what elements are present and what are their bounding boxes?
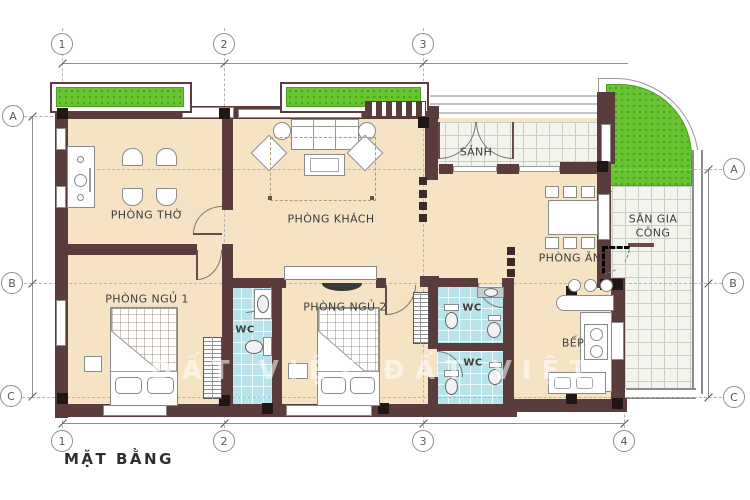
wall-segment (428, 285, 438, 349)
toilet-bowl (445, 312, 458, 329)
partition-post (419, 214, 427, 222)
grid-marker-top-1: 1 (51, 33, 73, 55)
bar-stool (584, 279, 597, 292)
room-label-worship: PHÒNG THỜ (111, 209, 183, 222)
bar-stool (600, 279, 613, 292)
room-label-bedroom1: PHÒNG NGỦ 1 (105, 293, 189, 306)
toilet-tank (263, 337, 272, 356)
grid-marker-bottom-2: 2 (213, 430, 235, 452)
door-leaf (196, 250, 198, 280)
window (56, 186, 66, 208)
tv-console (284, 266, 377, 280)
room-label-wc3: WC (463, 358, 482, 369)
column (219, 108, 230, 119)
door-leaf (512, 122, 514, 159)
toilet-bowl (245, 340, 263, 354)
wall-segment (437, 343, 505, 351)
bidet-bowl (487, 322, 501, 338)
column (612, 398, 623, 409)
grid-marker-bottom-3: 3 (412, 430, 434, 452)
partition-post (507, 258, 515, 266)
grid-marker-left-B: B (1, 272, 23, 294)
room-label-lobby: SẢNH (460, 146, 493, 159)
plan-title: MẶT BẰNG (64, 450, 174, 468)
floor-plan: ĐẤT VIỆT ĐẤT VIỆT PHÒNG THỜ PHÒNG KHÁCH … (0, 0, 750, 500)
grid-marker-bottom-1: 1 (51, 430, 73, 452)
coffee-table-inner (310, 158, 339, 172)
grid-marker-right-C: C (723, 386, 745, 408)
dining-chair (563, 237, 577, 249)
window (56, 128, 66, 150)
chair (122, 148, 143, 166)
dimension-line-bottom (62, 423, 624, 424)
partition-post (507, 269, 515, 277)
bar-counter (556, 295, 614, 311)
dining-chair (545, 186, 559, 198)
partition-post (419, 202, 427, 210)
wall-segment (560, 162, 598, 174)
wall-segment (503, 399, 625, 412)
dimension-line-top (62, 63, 628, 64)
toilet-tank (444, 304, 459, 311)
window (286, 405, 372, 416)
room-label-bedroom2: PHÒNG NGỦ 2 (303, 301, 387, 314)
window (611, 322, 624, 360)
grid-marker-top-2: 2 (213, 33, 235, 55)
column (566, 393, 577, 404)
slatted-screen (365, 101, 426, 117)
dining-chair (581, 237, 595, 249)
wardrobe-line (420, 292, 421, 344)
room-label-dining: PHÒNG ĂN (539, 252, 602, 265)
window (103, 405, 167, 416)
carpet-corner-dot (268, 196, 272, 200)
burner (590, 328, 603, 341)
column-gap (601, 124, 611, 162)
bar-stool (568, 279, 581, 292)
chair (156, 148, 177, 166)
watermark: ĐẤT VIỆT ĐẤT VIỆT (150, 356, 597, 386)
sofa-back-line (292, 126, 358, 127)
grid-marker-bottom-4: 4 (613, 430, 635, 452)
porch-step-line (430, 103, 598, 105)
candle (77, 194, 84, 201)
wardrobe (413, 292, 429, 344)
partition-post (419, 177, 427, 185)
wall-segment (502, 278, 514, 287)
porch-step-line (430, 95, 598, 97)
planter-grass (56, 87, 184, 107)
dining-chair (563, 186, 577, 198)
wall-segment (497, 164, 519, 174)
wall-segment (222, 118, 233, 210)
yard-fence-right (692, 150, 703, 394)
incense-burner (74, 174, 87, 187)
nightstand (84, 356, 102, 372)
wash-basin (257, 295, 269, 313)
grid-marker-top-3: 3 (412, 33, 434, 55)
pillow (115, 377, 142, 394)
grid-line-A-left (24, 116, 58, 117)
column (612, 279, 623, 290)
grid-marker-right-B: B (722, 272, 744, 294)
window (56, 300, 66, 346)
column (418, 117, 429, 128)
carpet-corner-dot (370, 196, 374, 200)
wall-segment (272, 285, 282, 406)
room-label-living: PHÒNG KHÁCH (288, 213, 375, 226)
door-leaf (628, 243, 654, 247)
partition-post (507, 247, 515, 255)
room-label-kitchen: BẾP (562, 337, 584, 350)
grid-marker-left-A: A (2, 105, 24, 127)
wall-segment (439, 164, 453, 174)
column (57, 393, 68, 404)
door-sill (453, 166, 497, 172)
dining-chair (581, 186, 595, 198)
window (598, 194, 610, 240)
bidet-tank (488, 315, 501, 321)
door-leaf (438, 122, 440, 159)
candle (77, 156, 84, 163)
wash-basin (484, 288, 498, 297)
altar-detail (89, 168, 91, 192)
room-label-wc2: WC (462, 303, 481, 314)
partition-post (419, 190, 427, 198)
dining-table (548, 200, 598, 235)
wall-segment (55, 244, 197, 255)
room-label-wc1: WC (235, 325, 254, 336)
porch-step-line (430, 112, 598, 114)
column (597, 161, 608, 172)
column (57, 108, 68, 119)
door-leaf (193, 233, 222, 235)
grid-marker-left-C: C (0, 385, 22, 407)
room-label-work-yard: SÂN GIA CÔNG (620, 212, 686, 240)
grid-line-A (67, 169, 722, 170)
corner-garden (606, 84, 692, 186)
dining-chair (545, 237, 559, 249)
grid-marker-right-A: A (723, 158, 745, 180)
column (262, 403, 273, 414)
door-sill (519, 166, 560, 172)
wall-segment (430, 278, 478, 287)
dimension-line-left (32, 116, 33, 396)
